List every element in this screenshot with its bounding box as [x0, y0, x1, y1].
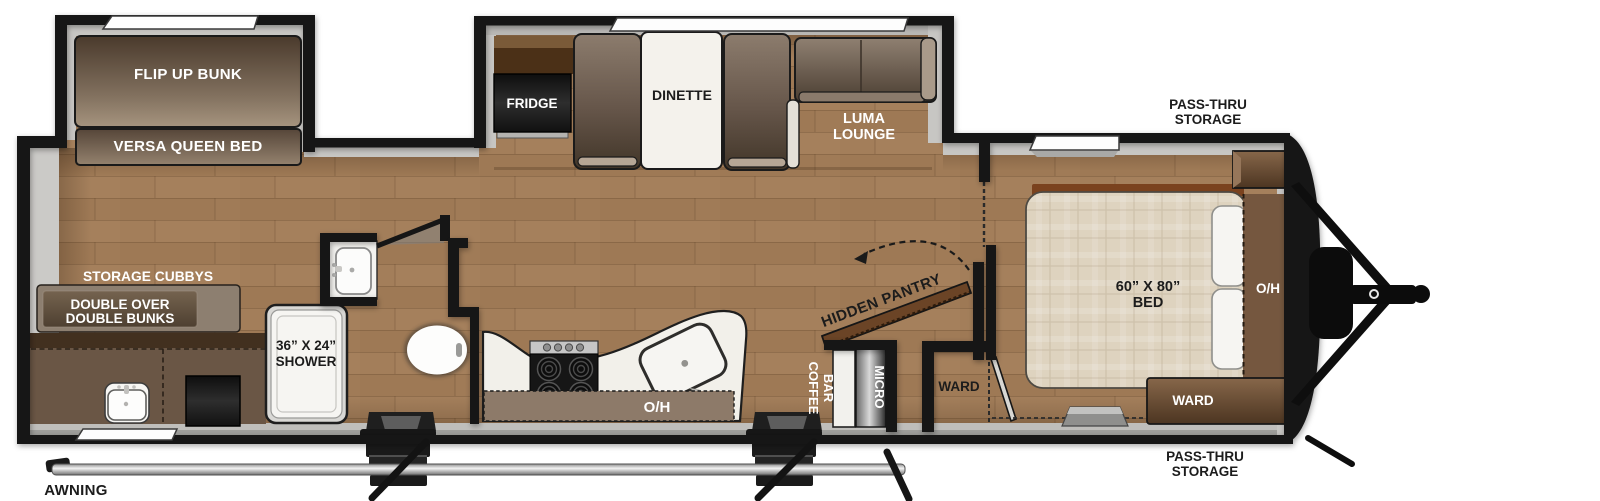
svg-text:O/H: O/H [1256, 281, 1280, 296]
svg-text:LOUNGE: LOUNGE [833, 127, 895, 143]
svg-text:WARD: WARD [938, 379, 979, 394]
svg-text:FRIDGE: FRIDGE [506, 96, 557, 111]
svg-text:STORAGE: STORAGE [1175, 112, 1242, 127]
svg-text:BED: BED [1133, 295, 1164, 311]
svg-text:60” X 80”: 60” X 80” [1116, 279, 1181, 295]
svg-text:DOUBLE OVER: DOUBLE OVER [70, 297, 169, 312]
svg-text:36” X 24”: 36” X 24” [276, 338, 336, 353]
svg-text:PASS-THRU: PASS-THRU [1169, 97, 1247, 112]
svg-text:DOUBLE BUNKS: DOUBLE BUNKS [66, 311, 175, 326]
svg-text:COFFEE: COFFEE [806, 362, 821, 415]
svg-text:LUMA: LUMA [843, 111, 885, 127]
svg-text:PASS-THRU: PASS-THRU [1166, 449, 1244, 464]
svg-text:WARD: WARD [1172, 393, 1213, 408]
svg-text:BAR: BAR [821, 374, 836, 403]
svg-text:FLIP UP BUNK: FLIP UP BUNK [134, 66, 242, 83]
svg-text:STORAGE: STORAGE [1172, 464, 1239, 479]
svg-text:MICRO: MICRO [872, 365, 887, 408]
svg-text:O/H: O/H [644, 399, 671, 416]
svg-text:SHOWER: SHOWER [276, 354, 337, 369]
svg-text:VERSA QUEEN BED: VERSA QUEEN BED [114, 138, 263, 155]
svg-text:STORAGE CUBBYS: STORAGE CUBBYS [83, 269, 213, 284]
svg-text:AWNING: AWNING [44, 482, 107, 499]
svg-text:DINETTE: DINETTE [652, 87, 712, 103]
